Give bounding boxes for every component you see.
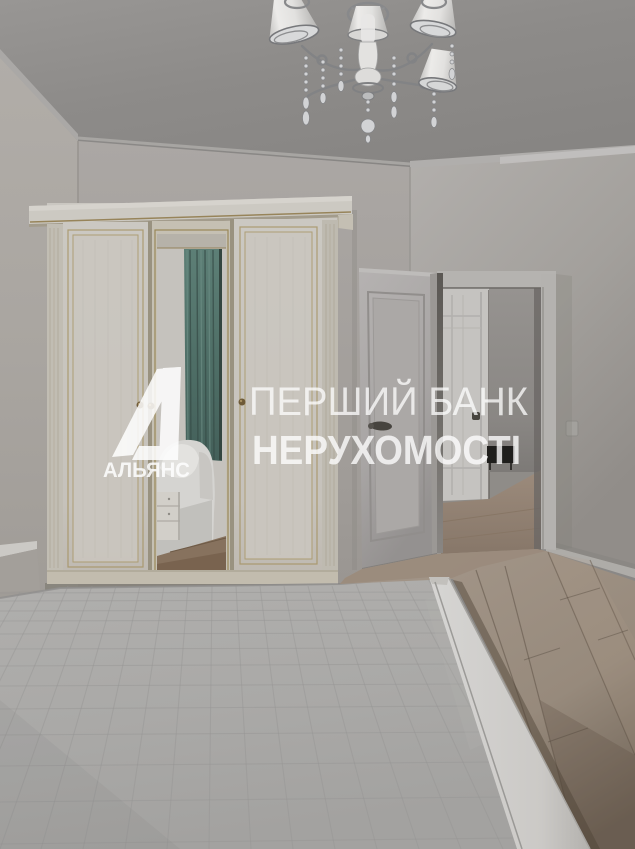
svg-text:АЛЬЯНС: АЛЬЯНС: [103, 459, 190, 482]
svg-text:ПЕРШИЙ БАНК: ПЕРШИЙ БАНК: [249, 378, 529, 424]
svg-text:НЕРУХОМОСТІ: НЕРУХОМОСТІ: [252, 427, 521, 473]
